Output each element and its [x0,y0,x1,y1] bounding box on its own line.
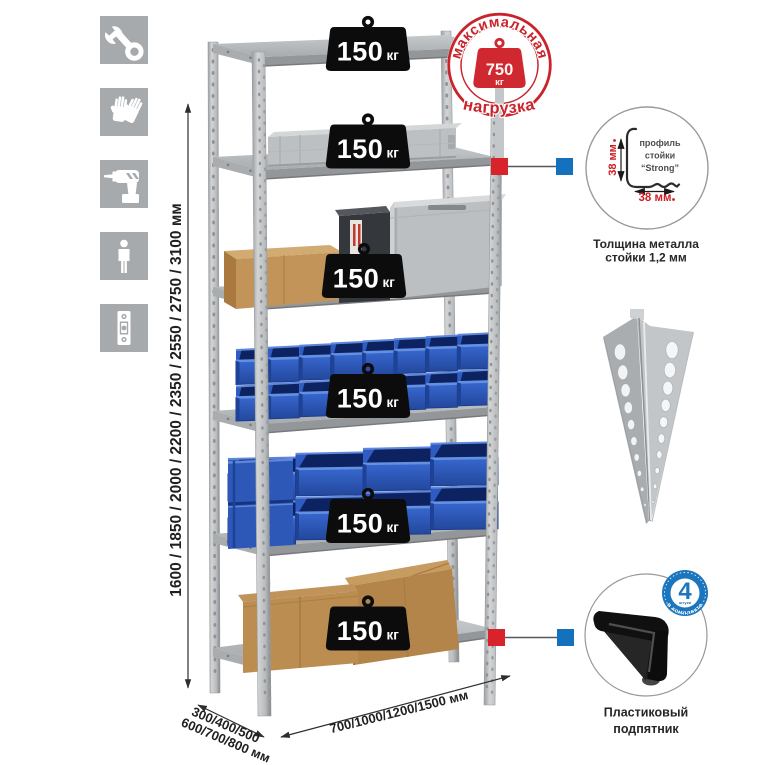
svg-text:стойки 1,2 мм: стойки 1,2 мм [605,251,687,265]
svg-text:Пластиковый: Пластиковый [604,706,688,720]
svg-text:38 мм: 38 мм [607,144,619,176]
svg-text:штуки: штуки [679,600,692,605]
svg-text:38 мм: 38 мм [638,192,671,204]
svg-text:700/1000/1200/1500 мм: 700/1000/1200/1500 мм [328,687,470,736]
svg-text:кг: кг [495,77,504,88]
svg-text:подпятник: подпятник [613,722,679,736]
svg-text:“Strong”: “Strong” [641,163,679,173]
svg-text:стойки: стойки [645,151,675,161]
svg-text:1600 / 1850 / 2000 / 2200 / 23: 1600 / 1850 / 2000 / 2200 / 2350 / 2550 … [168,203,185,597]
svg-text:профиль: профиль [639,138,681,148]
svg-text:Толщина металла: Толщина металла [593,237,699,251]
